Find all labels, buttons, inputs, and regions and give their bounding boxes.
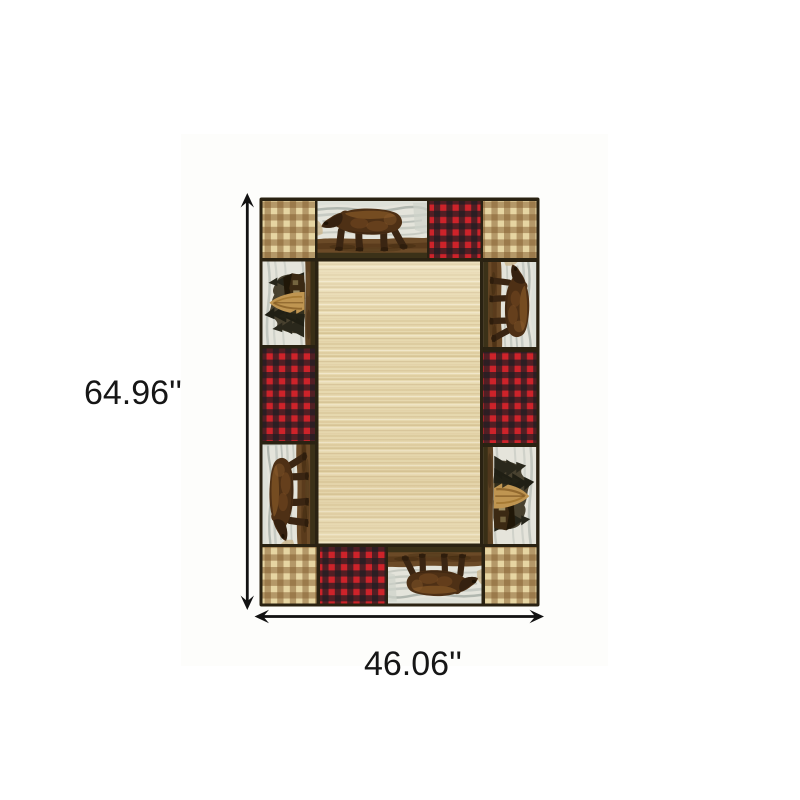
svg-text:46.06'': 46.06'' [364, 645, 462, 683]
svg-text:64.96'': 64.96'' [84, 374, 182, 412]
